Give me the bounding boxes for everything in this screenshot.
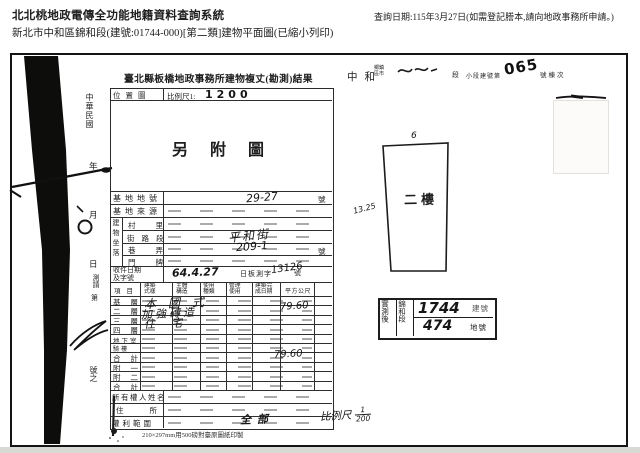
receipt-number-unit: 號	[294, 268, 301, 278]
row-arcade: 騎樓	[113, 344, 129, 353]
query-date: 查詢日期:115年3月27日(如需登記謄本,請向地政事務所申請。)	[374, 10, 614, 23]
col-management: 管理使用	[229, 283, 242, 295]
plan-floor-label: 二樓	[404, 189, 438, 209]
col-completion-date: 建築完成日期	[255, 283, 275, 295]
site-lot-unit: 號	[318, 194, 326, 205]
plan-scale-denominator: 200	[355, 414, 372, 424]
margin-day-label: 日	[89, 258, 98, 270]
situs-street-label: 街路段	[127, 233, 171, 244]
plan-scale-fraction: 1200	[354, 406, 371, 424]
scale-prefix-label: 比例尺1:	[167, 91, 195, 102]
location-map-label: 位置圖	[113, 90, 151, 101]
site-lot-value: 29-27	[245, 190, 278, 206]
situs-lane-label: 巷弄	[128, 245, 183, 256]
hw-rights-value: 全部	[240, 410, 275, 427]
receipt-prefix-label: 日板測字	[240, 269, 272, 279]
faint-erased-box	[553, 100, 609, 174]
address-label: 住所	[116, 405, 183, 416]
form-title: 臺北縣板橋地政事務所建物複丈(勘測)結果	[124, 71, 313, 85]
margin-year-label: 年	[89, 160, 98, 172]
site-lot-label: 基地地號	[113, 193, 161, 204]
situs-lane-unit: 號	[318, 246, 326, 257]
margin-era-label: 中華民國	[84, 93, 95, 137]
col-square-meters: 平方公尺	[285, 286, 311, 295]
owner-name-label: 所有權人姓名	[112, 392, 166, 403]
margin-number-label: 號之	[88, 366, 99, 390]
admin-unit-grid: 鄉鎮區市	[374, 66, 385, 77]
section-suffix-label: 段	[452, 70, 459, 80]
stamp-lot-unit: 地號	[470, 322, 487, 333]
scan-bottom-strip	[0, 447, 640, 453]
receipt-date-value: 64.4.27	[172, 265, 219, 280]
stamp-build-no: 1744	[418, 299, 460, 317]
site-source-label: 基地來源	[113, 206, 161, 217]
plan-scale-label: 比例尺 1200	[320, 406, 372, 426]
margin-ordinal-label: 第	[91, 293, 98, 303]
stamp-after-survey-label: 實測後	[381, 300, 389, 336]
col-item: 項目	[114, 285, 139, 295]
map-note-text: 另附圖	[172, 136, 286, 160]
hw-floor-area: 79.60	[280, 300, 309, 313]
situs-label: 建物坐落	[111, 219, 121, 265]
situs-village-label: 村里	[128, 220, 183, 231]
margin-month-label: 月	[89, 209, 98, 221]
stamp-lot-no: 474	[423, 318, 452, 334]
page-title: 北北桃地政電傳全功能地籍資料查詢系統	[12, 7, 224, 23]
plan-scale-numerator: 1	[360, 406, 365, 414]
rights-scope-label: 權利範圍	[112, 418, 154, 429]
plan-scale-text: 比例尺	[320, 409, 352, 423]
scale-value: 1200	[205, 88, 252, 101]
plan-width-dim: 6	[411, 131, 417, 141]
building-number-suffix: 號棟次	[540, 69, 566, 79]
paper-note: 210×297mm用500磅對臺原圖紙印製	[142, 429, 244, 439]
stamp-build-unit: 建號	[472, 303, 489, 314]
margin-survey-label: 測請	[91, 274, 101, 292]
receipt-label: 收件日期及字號	[113, 267, 145, 282]
situs-lane-value: 209-1	[236, 239, 269, 254]
hw-total-area: 79.60	[274, 348, 303, 360]
small-section-label: 小段建號第	[466, 71, 501, 80]
col-style: 建築式樣	[144, 283, 157, 295]
hw-use: 住宅	[144, 314, 199, 332]
page-subtitle: 新北市中和區錦和段(建號:01744-000)[第二類]建物平面圖(已縮小列印)	[12, 25, 333, 40]
stamp-section-label: 錦和段	[398, 300, 406, 336]
